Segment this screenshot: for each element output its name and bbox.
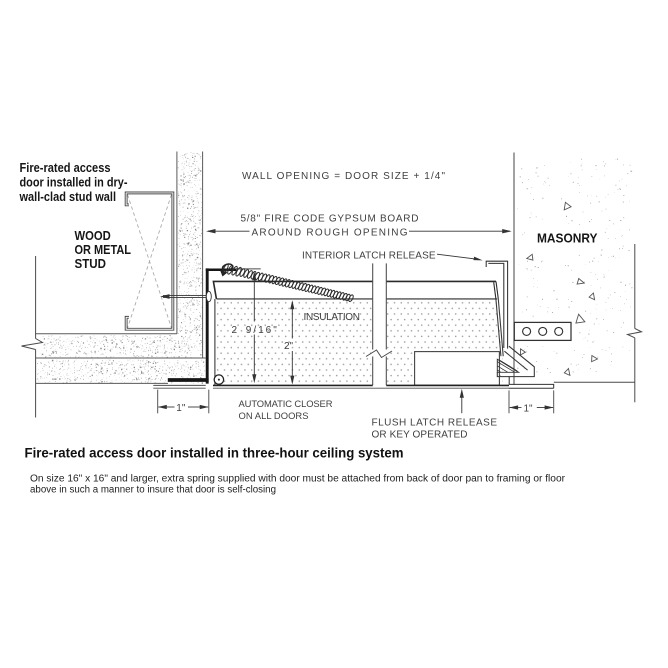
svg-text:FLUSH LATCH RELEASE: FLUSH LATCH RELEASE: [372, 417, 498, 428]
svg-text:ON ALL DOORS: ON ALL DOORS: [239, 410, 309, 421]
svg-text:INTERIOR LATCH RELEASE: INTERIOR LATCH RELEASE: [302, 251, 436, 262]
svg-text:door installed in dry-: door installed in dry-: [20, 175, 128, 190]
svg-text:MASONRY: MASONRY: [537, 231, 598, 246]
svg-text:9/16": 9/16": [246, 325, 277, 336]
svg-text:Fire-rated access: Fire-rated access: [20, 160, 111, 175]
svg-text:OR METAL: OR METAL: [75, 242, 132, 257]
svg-text:OR KEY OPERATED: OR KEY OPERATED: [372, 429, 468, 440]
svg-text:AROUND ROUGH OPENING: AROUND ROUGH OPENING: [252, 228, 408, 239]
svg-text:wall-clad stud wall: wall-clad stud wall: [19, 189, 116, 204]
svg-text:2: 2: [232, 325, 238, 336]
svg-text:5/8" FIRE CODE GYPSUM BOARD: 5/8" FIRE CODE GYPSUM BOARD: [241, 214, 419, 225]
svg-text:AUTOMATIC CLOSER: AUTOMATIC CLOSER: [239, 398, 333, 409]
svg-text:Fire-rated access door install: Fire-rated access door installed in thre…: [25, 445, 404, 460]
svg-text:above in such a manner to insu: above in such a manner to insure that do…: [30, 485, 276, 496]
svg-text:1": 1": [524, 404, 534, 415]
svg-text:1": 1": [176, 403, 186, 414]
svg-text:2": 2": [284, 341, 294, 352]
svg-text:INSULATION: INSULATION: [304, 312, 361, 323]
svg-text:STUD: STUD: [75, 256, 107, 271]
svg-text:WALL OPENING = DOOR SIZE + 1/4: WALL OPENING = DOOR SIZE + 1/4": [242, 171, 445, 182]
svg-text:On size 16" x 16" and larger,: On size 16" x 16" and larger, extra spri…: [30, 473, 566, 484]
svg-text:WOOD: WOOD: [75, 228, 111, 243]
